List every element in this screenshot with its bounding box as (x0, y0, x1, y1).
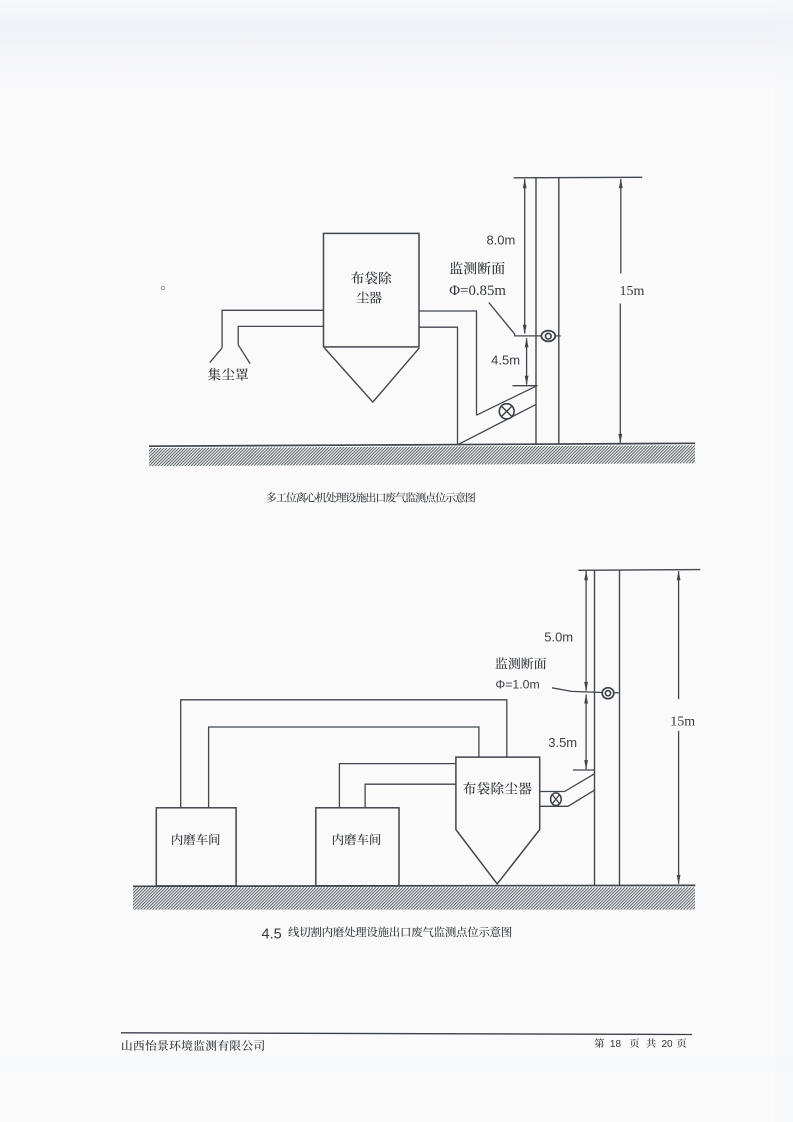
svg-text:4.5m: 4.5m (491, 352, 520, 367)
svg-text:3.5m: 3.5m (548, 735, 577, 750)
svg-text:20: 20 (662, 1039, 674, 1050)
svg-text:Φ=1.0m: Φ=1.0m (495, 677, 539, 691)
svg-text:18: 18 (610, 1039, 622, 1050)
svg-text:8.0m: 8.0m (486, 233, 515, 248)
svg-text:15m: 15m (670, 714, 695, 729)
svg-text:Φ=0.85m: Φ=0.85m (449, 283, 506, 299)
svg-text:15m: 15m (620, 284, 645, 299)
svg-text:4.5: 4.5 (262, 926, 282, 942)
svg-text:5.0m: 5.0m (544, 630, 573, 645)
